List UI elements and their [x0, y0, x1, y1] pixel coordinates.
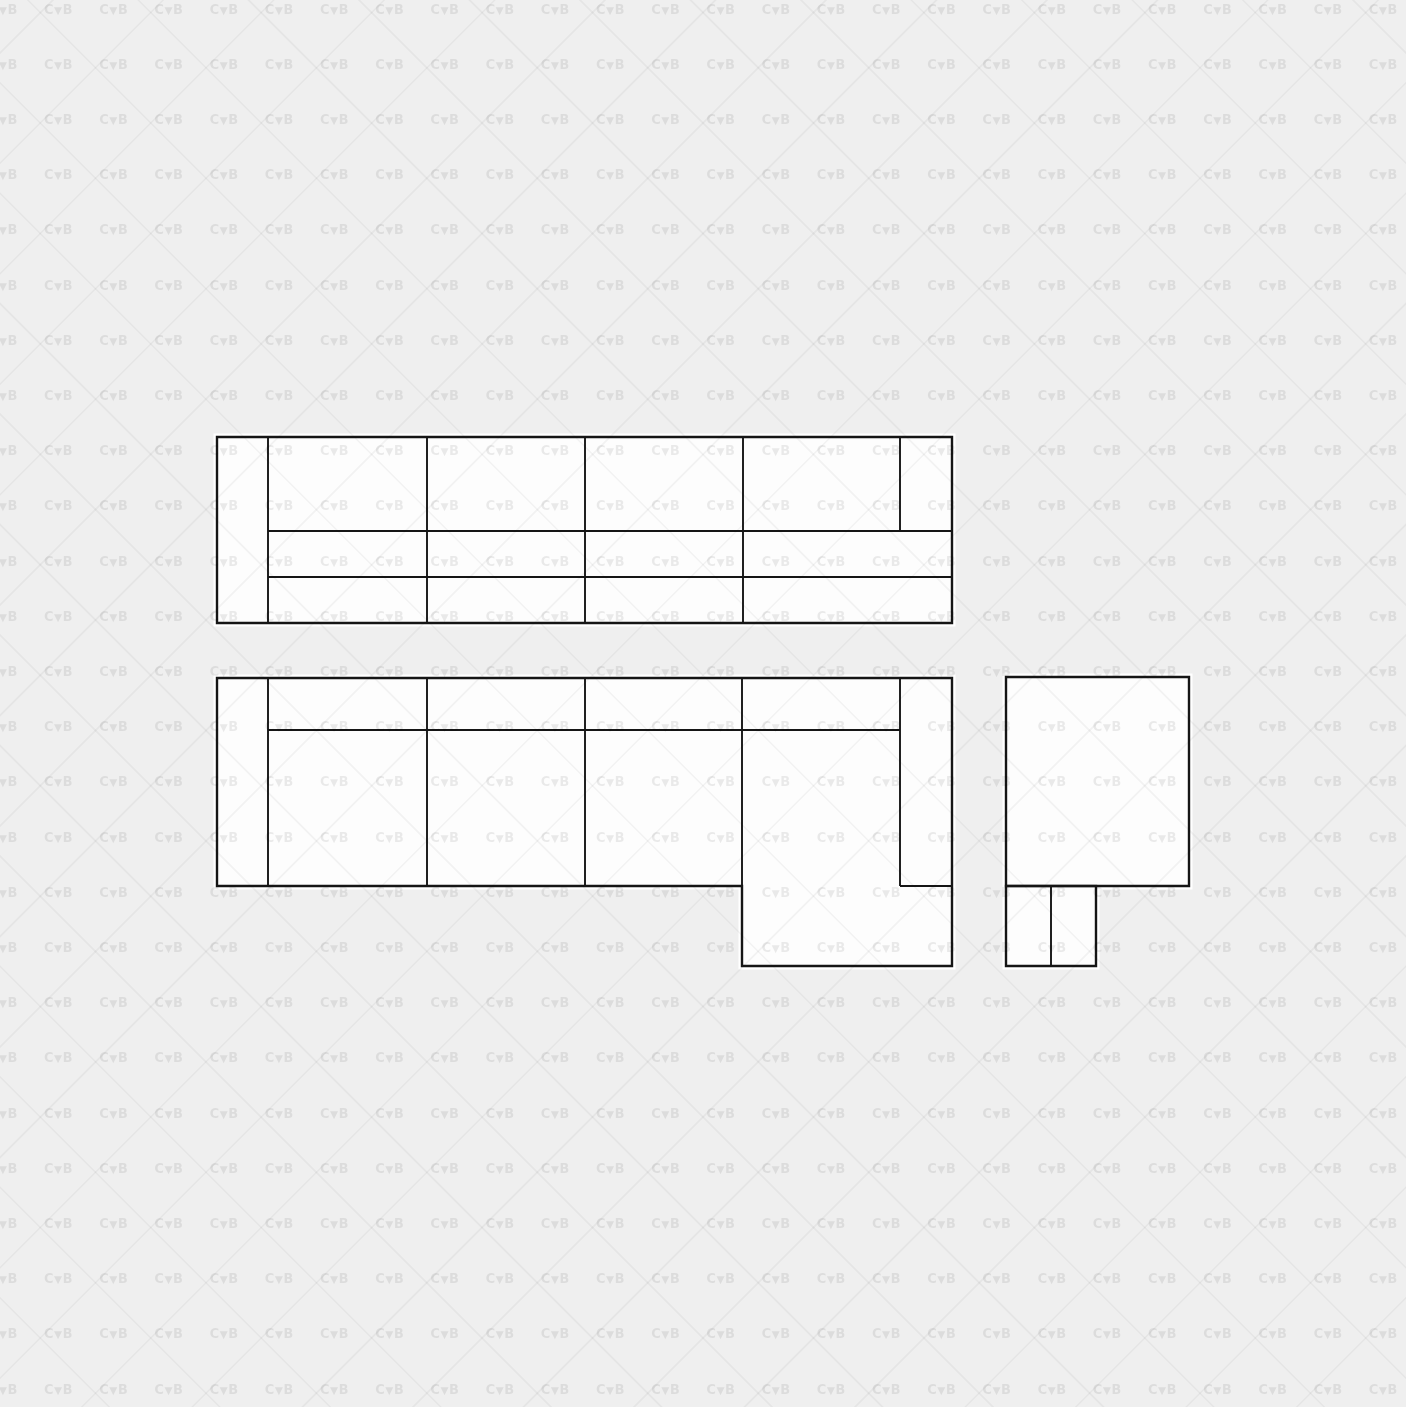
furniture-drawing — [0, 0, 1406, 1407]
stock-image-canvas: C▼BC▼BC▼BC▼BC▼BC▼BC▼BC▼BC▼BC▼BC▼BC▼BC▼BC… — [0, 0, 1406, 1407]
armchair-top-view-fill — [1006, 677, 1189, 886]
